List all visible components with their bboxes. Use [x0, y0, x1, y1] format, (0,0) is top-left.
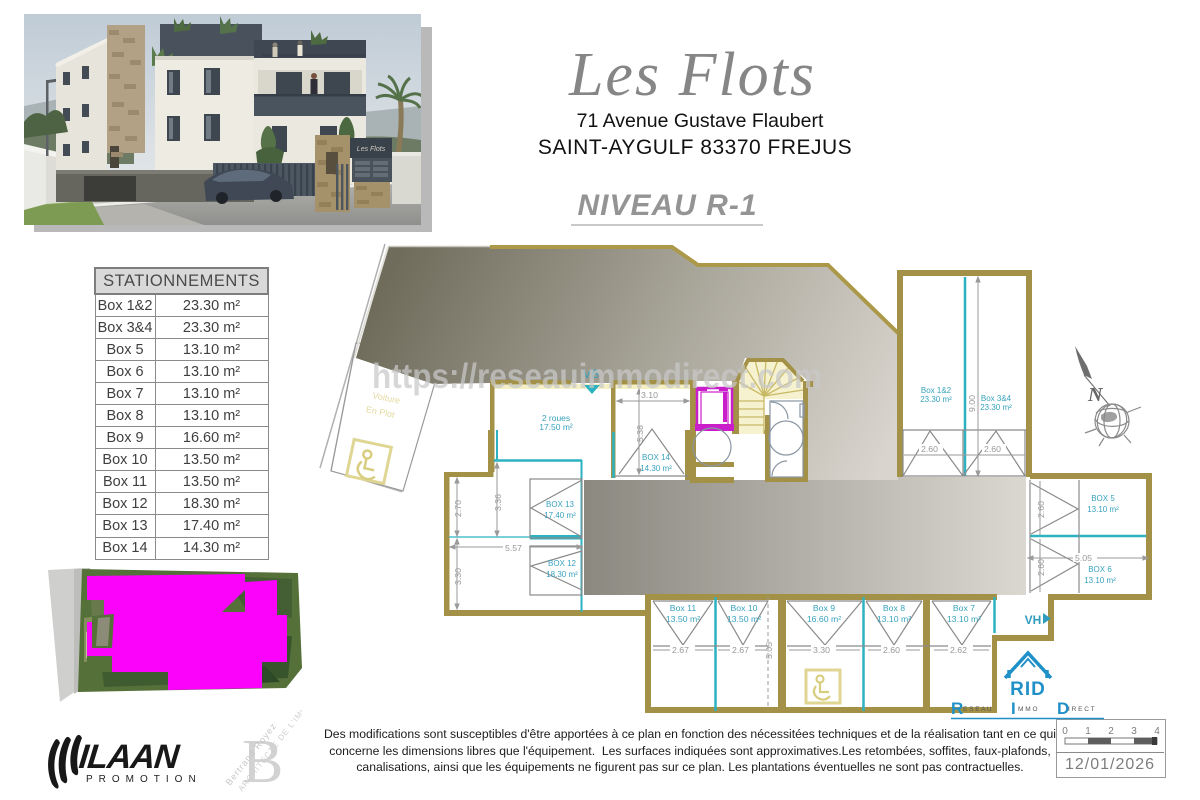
svg-text:3.30: 3.30 [453, 568, 463, 585]
svg-text:13.50 m²: 13.50 m² [727, 614, 761, 624]
svg-text:2.60: 2.60 [984, 444, 1001, 454]
svg-text:2.62: 2.62 [950, 645, 967, 655]
svg-text:R: R [951, 699, 963, 718]
svg-text:Box 1&2: Box 1&2 [921, 386, 952, 395]
svg-text:3.30: 3.30 [813, 645, 830, 655]
svg-text:23.30 m²: 23.30 m² [980, 403, 1012, 412]
svg-text:18.30 m²: 18.30 m² [546, 570, 578, 579]
svg-text:Box 3&4: Box 3&4 [981, 394, 1012, 403]
svg-text:2.67: 2.67 [672, 645, 689, 655]
svg-text:https://reseauimmodirect.com: https://reseauimmodirect.com [372, 357, 822, 396]
svg-text:2.60: 2.60 [883, 645, 900, 655]
svg-text:Box 10: Box 10 [730, 603, 757, 613]
svg-text:2.60: 2.60 [1036, 501, 1046, 518]
svg-text:2.60: 2.60 [1036, 559, 1046, 576]
svg-text:5.38: 5.38 [635, 425, 645, 442]
svg-text:RID: RID [1010, 679, 1046, 700]
svg-text:Box 9: Box 9 [813, 603, 835, 613]
svg-text:BOX 5: BOX 5 [1091, 494, 1115, 503]
svg-text:9.00: 9.00 [967, 395, 977, 412]
svg-text:13.10 m²: 13.10 m² [1084, 576, 1116, 585]
svg-text:2.67: 2.67 [732, 645, 749, 655]
svg-text:BOX 6: BOX 6 [1088, 565, 1112, 574]
svg-text:Les Flots: Les Flots [357, 146, 386, 153]
svg-text:M M O: M M O [1018, 706, 1038, 713]
svg-text:I R E C T: I R E C T [1068, 706, 1095, 713]
svg-text:5.57: 5.57 [505, 543, 522, 553]
svg-text:Box 8: Box 8 [883, 603, 905, 613]
svg-text:13.10 m²: 13.10 m² [947, 614, 981, 624]
svg-text:17.40 m²: 17.40 m² [544, 511, 576, 520]
svg-text:14.30 m²: 14.30 m² [640, 464, 672, 473]
svg-text:13.10 m²: 13.10 m² [1087, 505, 1119, 514]
svg-text:5.05: 5.05 [764, 642, 774, 659]
svg-text:3.36: 3.36 [493, 494, 503, 511]
svg-text:VH: VH [1025, 613, 1042, 627]
svg-text:BOX 14: BOX 14 [642, 453, 671, 462]
svg-text:13.50 m²: 13.50 m² [666, 614, 700, 624]
svg-text:E S E A U: E S E A U [963, 706, 992, 713]
svg-text:Box 7: Box 7 [953, 603, 975, 613]
svg-text:2.70: 2.70 [453, 500, 463, 517]
svg-text:Box 11: Box 11 [670, 603, 697, 613]
svg-text:BOX 12: BOX 12 [548, 559, 577, 568]
svg-text:17.50 m²: 17.50 m² [539, 422, 573, 432]
svg-text:16.60 m²: 16.60 m² [807, 614, 841, 624]
svg-text:N: N [1087, 384, 1104, 406]
svg-text:13.10 m²: 13.10 m² [877, 614, 911, 624]
svg-text:ILAAN: ILAAN [77, 738, 182, 776]
svg-text:PROMOTION: PROMOTION [86, 774, 202, 785]
svg-text:2.60: 2.60 [921, 444, 938, 454]
svg-text:BOX 13: BOX 13 [546, 500, 575, 509]
svg-text:I: I [1011, 699, 1016, 718]
svg-text:5.05: 5.05 [1075, 553, 1092, 563]
svg-text:23.30 m²: 23.30 m² [920, 395, 952, 404]
